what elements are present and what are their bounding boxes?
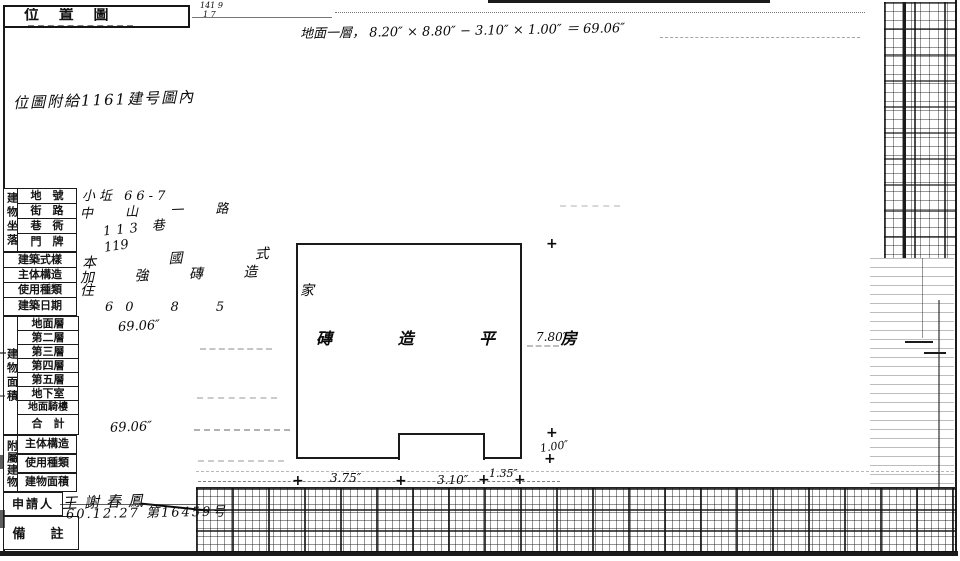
title-scale-note-1: 141 9	[200, 2, 223, 10]
noise-dash-3	[194, 429, 290, 431]
right-grid-heavy-rule	[903, 2, 906, 258]
noise-dash-1	[200, 348, 272, 350]
margin-note: 位圖附給1161建号圖內	[13, 90, 196, 111]
dim-cross-b4: +	[514, 473, 526, 487]
title-underline	[28, 25, 133, 27]
page-border-top-segment	[488, 0, 770, 3]
dim-line-bottom	[198, 481, 560, 482]
noise-dash-5	[527, 345, 559, 347]
row-label-annex-use: 使用種類	[17, 454, 77, 473]
dim-bottom-mid: 3.10″	[437, 474, 468, 486]
right-margin-rule-2	[922, 258, 923, 338]
bottom-grid-strip	[196, 487, 956, 552]
formula-trailing-dashes	[660, 37, 860, 38]
value-total-area: 69.06″	[110, 420, 153, 434]
noise-dash-4	[198, 460, 284, 462]
dim-cross-b1: +	[292, 474, 304, 488]
dim-cross-b3: +	[478, 473, 490, 487]
right-margin-hatch	[870, 258, 954, 488]
dim-cross-b2: +	[395, 474, 407, 488]
dim-cross-notch-bottom: +	[544, 452, 556, 466]
noise-mark-2	[924, 352, 946, 354]
top-dotted-rule	[335, 12, 865, 13]
row-label-build-date: 建築日期	[3, 297, 77, 316]
row-label-house-no: 門 牌	[17, 233, 77, 252]
noise-mark-1	[905, 341, 933, 343]
dim-cross-top-right: +	[546, 237, 558, 251]
top-right-grid-block	[884, 2, 956, 258]
building-outline	[296, 243, 522, 459]
row-label-applicant: 申請人	[3, 492, 63, 516]
value-house-no: 119	[103, 238, 129, 254]
noise-dash-6	[560, 205, 620, 207]
value-lot-number: 小坵 66-7	[82, 190, 169, 203]
title-right-rule	[192, 17, 332, 18]
edge-fragment-1	[0, 455, 4, 469]
page-title: 位 置 圖	[24, 8, 117, 23]
value-floor1-area: 69.06″	[118, 319, 161, 334]
row-label-annex-area: 建物面積	[17, 473, 77, 492]
grid-top-dashes	[196, 471, 954, 472]
right-margin-rule-1	[938, 300, 940, 488]
building-notch	[398, 433, 485, 460]
dim-right-height: 7.80″	[536, 331, 567, 343]
edge-fragment-2	[0, 510, 5, 528]
noise-mark-4	[0, 395, 5, 397]
area-formula-note: 地面一層， 8.20″ × 8.80″ − 3.10″ × 1.00″ ＝ 69…	[300, 22, 625, 41]
value-lane: 113 巷	[103, 219, 171, 239]
dim-bottom-left: 3.75″	[330, 472, 361, 484]
value-build-date: 60 8 5	[105, 301, 236, 314]
dim-cross-notch-top: +	[546, 426, 558, 440]
row-label-annex-structure: 主体構造	[17, 435, 77, 454]
noise-mark-3	[0, 352, 6, 354]
remarks-rule	[60, 504, 200, 505]
row-label-total: 合 計	[17, 414, 79, 435]
noise-dash-2	[197, 397, 277, 399]
